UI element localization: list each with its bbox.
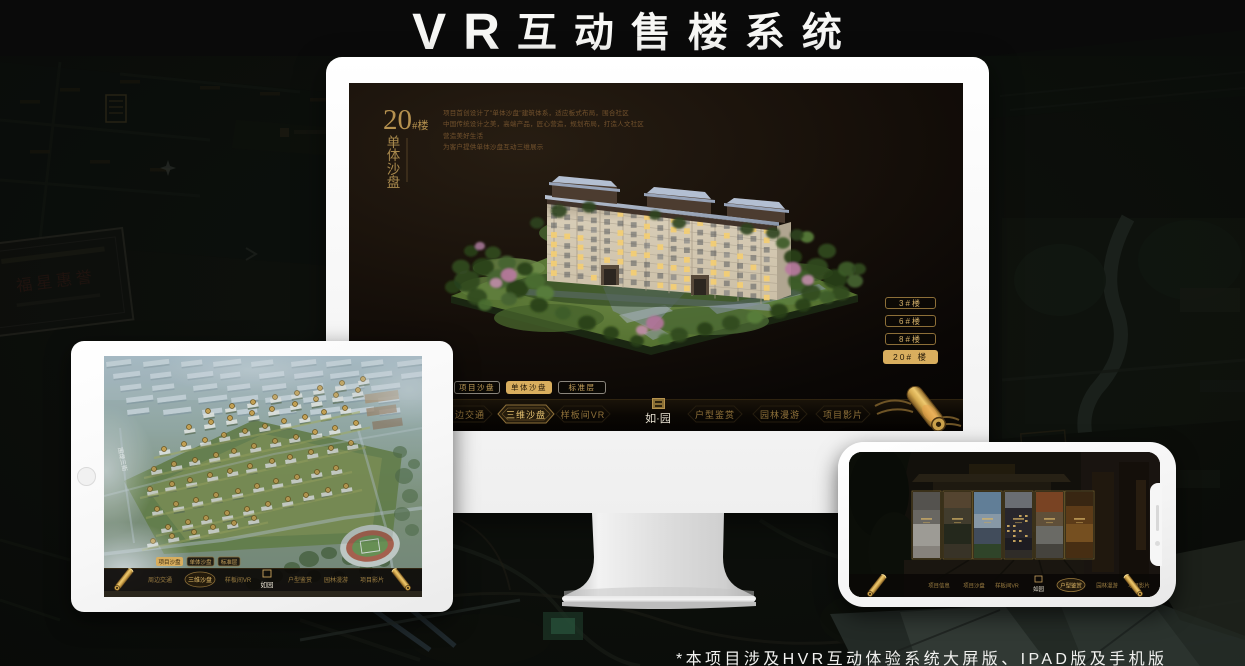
svg-text:项目信息: 项目信息 [928,582,950,590]
svg-text:标准层: 标准层 [221,558,238,566]
svg-text:单体沙盘: 单体沙盘 [189,558,212,566]
svg-text:如园: 如园 [1033,585,1045,593]
svg-text:户型鉴赏: 户型鉴赏 [288,576,312,584]
svg-text:样板间VR: 样板间VR [995,582,1019,590]
svg-text:三维沙盘: 三维沙盘 [188,576,212,584]
svg-text:园林漫游: 园林漫游 [324,576,348,584]
svg-text:项目沙盘: 项目沙盘 [158,558,181,566]
svg-text:周边交通: 周边交通 [148,576,172,584]
svg-text:项目沙盘: 项目沙盘 [963,582,985,590]
svg-text:园林漫游: 园林漫游 [1096,582,1118,590]
svg-text:户型鉴赏: 户型鉴赏 [1060,582,1082,590]
svg-text:项目影片: 项目影片 [360,576,384,584]
svg-text:如园: 如园 [261,580,274,589]
svg-text:样板间VR: 样板间VR [225,576,252,584]
